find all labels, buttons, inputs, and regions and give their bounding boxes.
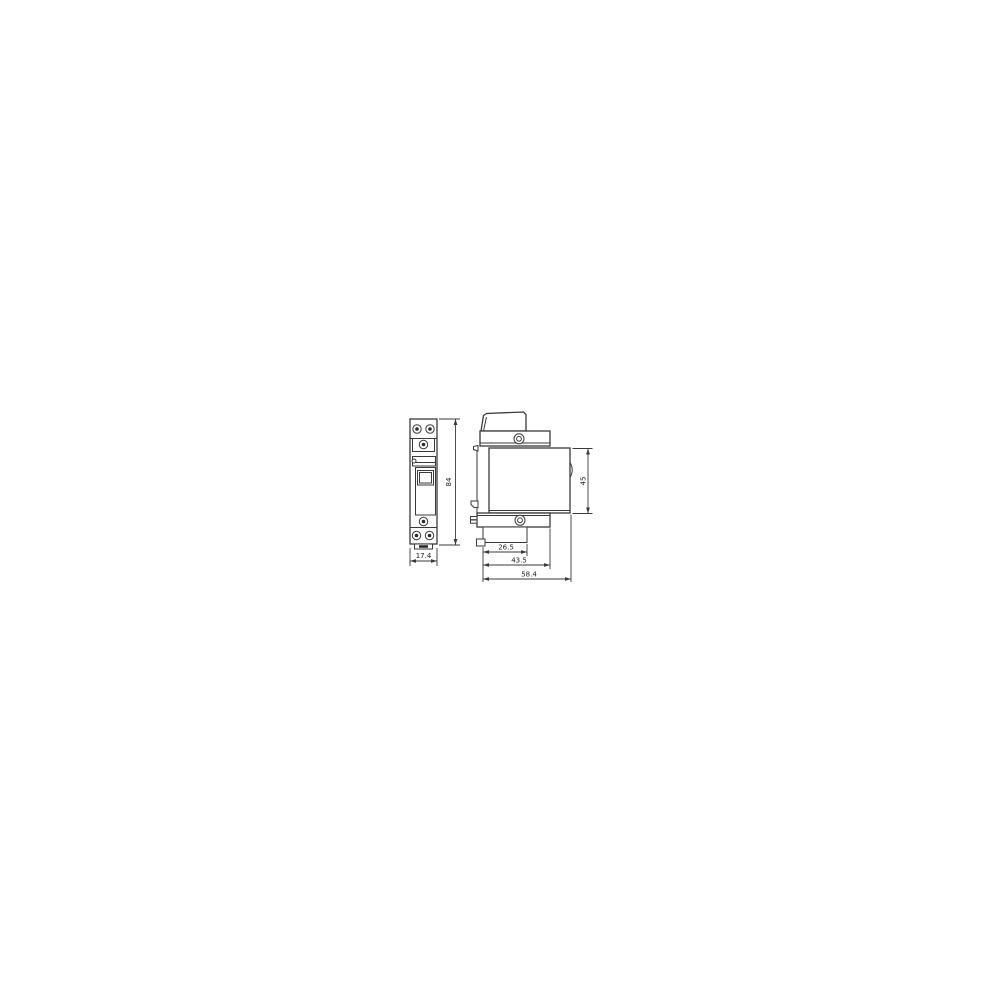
din-clip-notch: [471, 517, 478, 520]
terminal-screw-icon: [419, 517, 427, 525]
dimension-arrowhead: [565, 577, 571, 581]
dimension-arrowhead: [454, 419, 458, 425]
side-view: [471, 412, 573, 546]
din-rail-claw-top: [474, 446, 479, 452]
terminal-screw-icon: [413, 425, 421, 433]
dimension-width: 17.4: [410, 548, 437, 566]
dim-label-depth-step2: 43.5: [511, 557, 527, 565]
side-bottom-cover: [483, 527, 527, 543]
side-top-flap: [481, 412, 526, 431]
front-switch-rocker-face: [420, 473, 432, 484]
terminal-screw-icon: [419, 440, 427, 448]
dimension-height: 84: [439, 419, 460, 545]
dim-label-front-height: 45: [580, 477, 588, 486]
front-indicator-dot: [412, 459, 416, 463]
technical-drawing-canvas: 84 17.4: [0, 0, 1000, 1000]
terminal-screw-icon: [425, 531, 433, 539]
terminal-screw-icon: [515, 515, 525, 525]
dim-label-total-depth: 58.4: [521, 571, 537, 579]
front-view: [410, 419, 437, 549]
side-foot-block: [477, 539, 486, 546]
dimension-arrowhead: [483, 563, 489, 567]
dim-label-width: 17.4: [416, 552, 432, 560]
dimension-arrowhead: [586, 449, 590, 455]
dimension-arrowhead: [454, 539, 458, 545]
dimension-arrowhead: [483, 550, 489, 554]
dimension-arrowhead: [521, 550, 527, 554]
dim-label-height: 84: [445, 477, 453, 486]
dimension-arrowhead: [431, 559, 437, 563]
terminal-screw-icon: [412, 531, 420, 539]
dimension-arrowhead: [544, 563, 550, 567]
side-front-box: [489, 448, 570, 513]
din-rail-claw-middle: [471, 501, 478, 508]
din-foot-slot: [419, 545, 428, 548]
din-clip-notch: [471, 520, 478, 523]
terminal-screw-icon: [426, 425, 434, 433]
dimension-arrowhead: [586, 508, 590, 514]
dimension-arrowhead: [483, 577, 489, 581]
terminal-screw-icon: [514, 434, 524, 444]
dimension-front-height: 45: [573, 449, 593, 514]
dim-label-depth-step1: 26.5: [498, 544, 514, 552]
